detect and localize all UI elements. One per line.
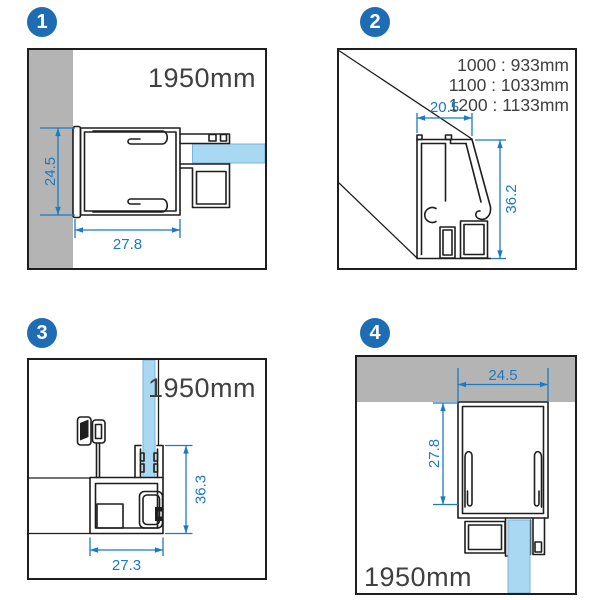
glass-panel <box>193 144 266 163</box>
step-4-number: 4 <box>369 322 380 345</box>
dim-label-top-width: 24.5 <box>488 367 517 384</box>
step-4-badge: 4 <box>360 318 390 348</box>
bar-profile-cross-section <box>417 135 491 259</box>
dimension-height <box>165 446 193 534</box>
step-1-badge: 1 <box>27 7 57 37</box>
wall-profile-cross-section <box>73 127 230 218</box>
dim-label-top-width: 20.5 <box>430 99 459 116</box>
dim-label-side: 27.8 <box>426 439 443 468</box>
size-option-3: 1200 : 1133mm <box>449 95 569 115</box>
glass-panel <box>508 520 530 593</box>
height-label: 1950mm <box>148 373 256 403</box>
height-label: 1950mm <box>148 63 256 93</box>
dim-label-height: 36.3 <box>193 475 210 504</box>
panel-4-ceiling-profile-diagram: 24.5 27.8 1950mm <box>355 355 577 595</box>
panel-1-wall-profile-diagram: 1950mm 24.5 <box>27 48 267 270</box>
step-2-number: 2 <box>369 11 380 34</box>
ceiling-profile-cross-section <box>458 402 548 556</box>
panel-2-top-bar-diagram: 1000 : 933mm 1100 : 1033mm 1200 : 1133mm <box>337 48 577 270</box>
height-label: 1950mm <box>364 562 472 592</box>
diagram-2-drawing: 1000 : 933mm 1100 : 1033mm 1200 : 1133mm <box>339 50 575 268</box>
dimension-top-width <box>417 113 472 136</box>
panel-3-bottom-rail-diagram: 1950mm <box>27 358 267 580</box>
step-2-badge: 2 <box>360 7 390 37</box>
size-option-1: 1000 : 933mm <box>457 55 569 75</box>
dim-label-height: 36.2 <box>503 184 520 213</box>
product-dimension-sheet: 1 2 3 4 1950mm <box>0 0 600 600</box>
dim-label-width: 27.8 <box>113 236 142 253</box>
dim-label-depth: 24.5 <box>42 157 59 186</box>
step-3-badge: 3 <box>27 318 57 348</box>
step-3-number: 3 <box>36 322 47 345</box>
ceiling-strip <box>357 357 575 402</box>
dim-label-width: 27.3 <box>112 557 141 574</box>
step-1-number: 1 <box>36 11 47 34</box>
size-option-2: 1100 : 1033mm <box>449 75 569 95</box>
diagram-1-drawing: 1950mm 24.5 <box>29 50 265 268</box>
dimension-width <box>90 538 163 557</box>
diagram-4-drawing: 24.5 27.8 1950mm <box>357 357 575 593</box>
diagram-3-drawing: 1950mm <box>29 360 265 578</box>
